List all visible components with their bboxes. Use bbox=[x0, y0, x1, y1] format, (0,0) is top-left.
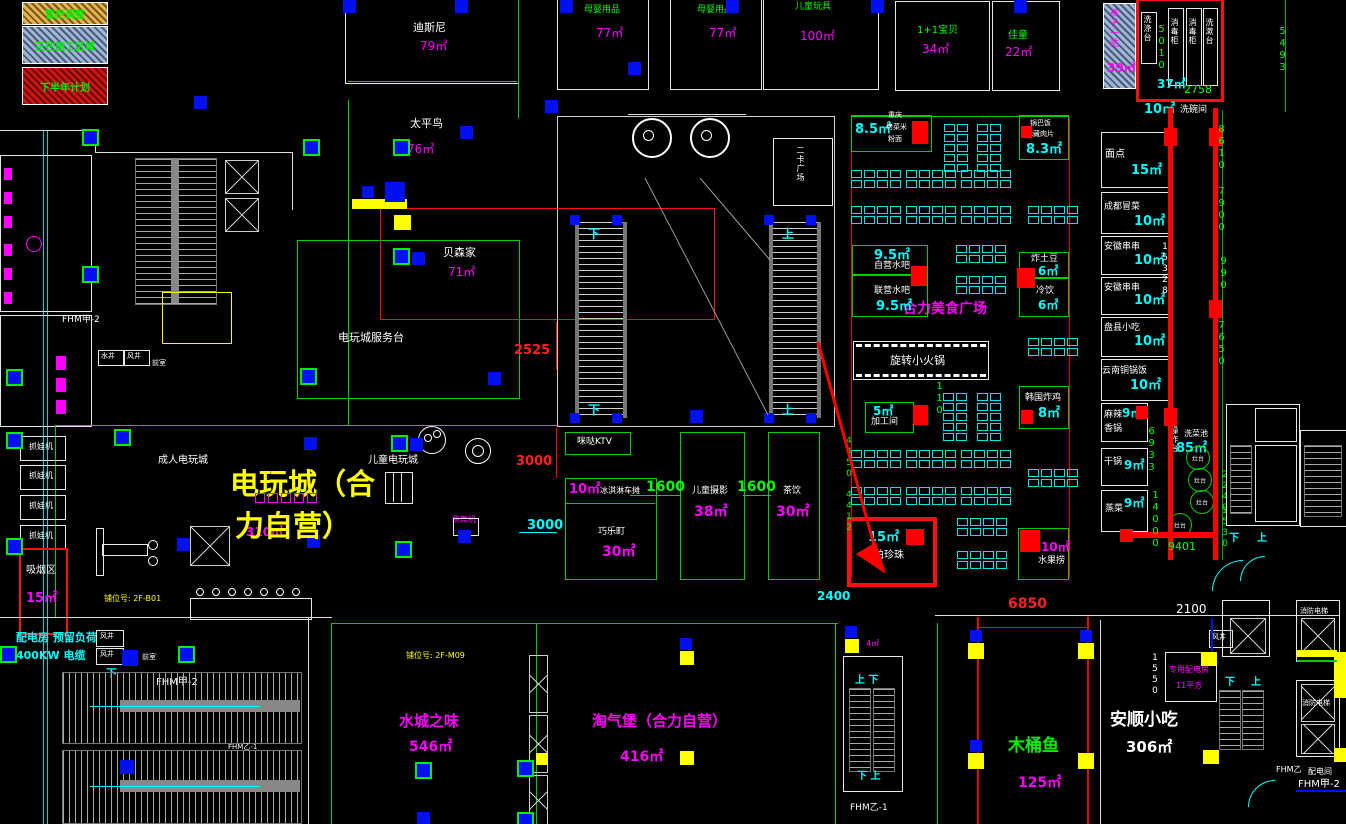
dim-line bbox=[519, 532, 557, 533]
dim-line bbox=[935, 615, 1340, 616]
table-cell bbox=[906, 170, 917, 178]
elevator-shaft bbox=[1301, 724, 1335, 754]
table-cell bbox=[990, 433, 1001, 441]
table-cell bbox=[956, 245, 967, 253]
stall-name: 联营水吧 bbox=[874, 287, 910, 296]
table-cell bbox=[983, 518, 994, 526]
table-cell bbox=[995, 245, 1006, 253]
stall-name: 安徽串串 bbox=[1104, 243, 1140, 252]
table-group bbox=[957, 551, 1007, 569]
column-fire bbox=[680, 751, 694, 765]
dim-label: 2758 bbox=[1184, 84, 1212, 95]
game-machine-detail bbox=[472, 445, 484, 457]
booth-number: 铺位号: 2F-B01 bbox=[104, 595, 161, 603]
table-cell bbox=[961, 450, 972, 458]
elevator-shaft bbox=[225, 160, 259, 194]
dim-label: 14000 bbox=[1150, 490, 1160, 550]
table-cell bbox=[956, 433, 967, 441]
dim-label: 2100 bbox=[1176, 603, 1207, 615]
stool bbox=[148, 540, 158, 550]
column bbox=[410, 438, 423, 451]
stool bbox=[196, 588, 204, 596]
dim-label: 2525 bbox=[514, 344, 550, 357]
stair-direction: 上 bbox=[1251, 678, 1261, 688]
stall-name: 粉面 bbox=[888, 136, 902, 143]
selection-grip bbox=[294, 493, 304, 503]
selection-grip bbox=[281, 493, 291, 503]
column bbox=[304, 437, 317, 450]
table-cell bbox=[851, 170, 862, 178]
stove-label: 灶台 bbox=[1174, 521, 1186, 530]
equipment-room bbox=[1255, 408, 1297, 442]
elevator-label: 消防电梯 bbox=[1300, 608, 1328, 615]
room-area: 37㎡ bbox=[1157, 78, 1186, 90]
wall-line bbox=[628, 114, 746, 115]
stall-area: 38㎡ bbox=[694, 505, 727, 519]
arcade-title: 力自营） bbox=[235, 512, 351, 541]
table-cell bbox=[919, 180, 930, 188]
table-cell bbox=[919, 450, 930, 458]
column bbox=[519, 814, 532, 824]
table-cell bbox=[982, 255, 993, 263]
stall-area: 10㎡ bbox=[1134, 335, 1165, 348]
table-cell bbox=[961, 180, 972, 188]
dim-label: 8610 bbox=[1216, 124, 1226, 172]
table-cell bbox=[1067, 206, 1078, 214]
column-fire bbox=[680, 651, 694, 665]
table-group bbox=[977, 124, 1001, 172]
column bbox=[194, 96, 207, 109]
toilet-fixture bbox=[4, 292, 12, 304]
entrance-ornament-detail bbox=[643, 130, 654, 141]
table-cell bbox=[851, 216, 862, 224]
toilet-fixture bbox=[4, 216, 12, 228]
table-cell bbox=[932, 206, 943, 214]
room-label: 前室 bbox=[152, 360, 166, 367]
store-area: 100㎡ bbox=[800, 30, 835, 42]
table-cell bbox=[1000, 180, 1011, 188]
table-group bbox=[956, 245, 1006, 263]
fire-door-label: FHM乙-1 bbox=[850, 804, 888, 813]
table-cell bbox=[990, 413, 1001, 421]
ktv-label: 咪哒KTV bbox=[577, 438, 612, 447]
table-cell bbox=[1000, 497, 1011, 505]
table-cell bbox=[957, 561, 968, 569]
stall-name: 巧乐町 bbox=[598, 528, 625, 537]
room-name: 洗碗间 bbox=[1180, 106, 1207, 115]
table-group bbox=[977, 393, 1001, 441]
store-area: 22㎡ bbox=[1005, 46, 1032, 58]
column bbox=[305, 141, 318, 154]
stove-label: 灶台 bbox=[1196, 498, 1208, 507]
column bbox=[395, 141, 408, 154]
fire-wall-block bbox=[1120, 529, 1133, 542]
column bbox=[560, 0, 573, 13]
dim-label: 990 bbox=[1218, 256, 1228, 292]
table-cell bbox=[987, 487, 998, 495]
legend-label: 正在施工区域 bbox=[23, 27, 107, 63]
escalator-direction: 下 bbox=[588, 404, 600, 416]
table-cell bbox=[961, 497, 972, 505]
zone-line bbox=[1297, 660, 1337, 662]
table-cell bbox=[864, 170, 875, 178]
dim-label: 1600 bbox=[737, 480, 776, 494]
zone-line bbox=[331, 623, 332, 824]
column bbox=[2, 648, 15, 661]
column bbox=[970, 630, 982, 642]
elevator-shaft bbox=[225, 198, 259, 232]
table-cell bbox=[1028, 479, 1039, 487]
annotation-arrow bbox=[780, 330, 910, 590]
table-cell bbox=[1028, 469, 1039, 477]
game-machine bbox=[385, 472, 413, 504]
column bbox=[570, 413, 580, 423]
store-name: 淘气堡（合力自营） bbox=[592, 714, 727, 729]
fire-door-label: FHM甲-2 bbox=[1298, 780, 1340, 790]
zone-line bbox=[331, 623, 838, 624]
highlight-block bbox=[1021, 410, 1033, 424]
dim-line bbox=[977, 627, 1087, 628]
shaft-outline bbox=[162, 292, 232, 344]
toilet-fixture bbox=[4, 168, 12, 180]
fire-wall-block bbox=[1164, 408, 1177, 426]
table-cell bbox=[990, 144, 1001, 152]
column bbox=[180, 648, 193, 661]
table-cell bbox=[932, 170, 943, 178]
zone-line bbox=[518, 0, 519, 118]
column-fire bbox=[968, 753, 984, 769]
stool bbox=[228, 588, 236, 596]
table-cell bbox=[956, 423, 967, 431]
table-cell bbox=[906, 180, 917, 188]
stall-area: 6㎡ bbox=[1038, 265, 1058, 277]
dim-line bbox=[556, 428, 557, 478]
dim-label: 3000 bbox=[527, 519, 563, 532]
column bbox=[1080, 630, 1092, 642]
table-cell bbox=[945, 487, 956, 495]
table-cell bbox=[919, 487, 930, 495]
table-cell bbox=[987, 450, 998, 458]
wall-line bbox=[0, 130, 95, 131]
table-cell bbox=[957, 124, 968, 132]
stall-name: 云南铜锅饭 bbox=[1102, 367, 1147, 376]
dim-label: 6933 bbox=[1146, 426, 1156, 474]
store-area: 77㎡ bbox=[709, 27, 736, 39]
table-cell bbox=[1054, 348, 1065, 356]
store-area: 71㎡ bbox=[448, 266, 475, 278]
table-cell bbox=[945, 460, 956, 468]
table-cell bbox=[983, 551, 994, 559]
column bbox=[120, 760, 134, 774]
equipment-room bbox=[1255, 445, 1297, 522]
stall-area: 8.3㎡ bbox=[1026, 143, 1062, 156]
column bbox=[871, 0, 884, 13]
table-cell bbox=[974, 497, 985, 505]
claw-label: 抓娃机 bbox=[29, 443, 53, 451]
table-cell bbox=[944, 154, 955, 162]
table-cell bbox=[906, 206, 917, 214]
staircase bbox=[1219, 690, 1241, 750]
stall-name: 成都冒菜 bbox=[1104, 203, 1140, 212]
sink-label: 洗漱台 bbox=[1205, 18, 1213, 45]
table-cell bbox=[974, 206, 985, 214]
stall-name: 蒸菜 bbox=[1105, 505, 1123, 514]
table-cell bbox=[945, 497, 956, 505]
stair-direction: 上 下 bbox=[855, 676, 878, 686]
table-cell bbox=[1054, 206, 1065, 214]
table-cell bbox=[1067, 479, 1078, 487]
dim-label: 2400 bbox=[817, 590, 850, 602]
table-group bbox=[944, 124, 968, 172]
table-cell bbox=[977, 433, 988, 441]
stair-path bbox=[90, 786, 260, 787]
table-cell bbox=[851, 206, 862, 214]
column bbox=[343, 0, 356, 13]
dim-label: 6850 bbox=[1008, 597, 1047, 611]
kitchen-station: 洗菜池 bbox=[1184, 430, 1208, 438]
table-cell bbox=[974, 487, 985, 495]
toilet-fixture bbox=[56, 400, 66, 414]
table-cell bbox=[1067, 348, 1078, 356]
sink-label: 消毒柜 bbox=[1170, 18, 1178, 45]
cable-line bbox=[1211, 618, 1213, 652]
legend-label: 下半年计划 bbox=[23, 68, 107, 104]
stall-name: 儿童摄影 bbox=[692, 487, 728, 496]
table-cell bbox=[957, 134, 968, 142]
store-area: 125㎡ bbox=[1018, 776, 1061, 790]
fire-wall-block bbox=[1334, 748, 1346, 762]
power-room-label: 专用配电房 bbox=[1169, 666, 1209, 674]
zone-line bbox=[55, 425, 557, 426]
table-cell bbox=[944, 124, 955, 132]
table-group bbox=[851, 206, 901, 224]
column bbox=[726, 0, 739, 13]
table-cell bbox=[945, 180, 956, 188]
table-cell bbox=[944, 144, 955, 152]
staircase bbox=[873, 688, 895, 772]
column bbox=[545, 100, 558, 113]
door-swing bbox=[1212, 560, 1243, 591]
table-cell bbox=[1054, 479, 1065, 487]
toilet-fixture bbox=[4, 268, 12, 280]
dim-label: 1600 bbox=[646, 480, 685, 494]
table-cell bbox=[919, 460, 930, 468]
table-cell bbox=[943, 433, 954, 441]
column-fire bbox=[968, 643, 984, 659]
dim-label: 5493 bbox=[1277, 26, 1287, 74]
store-name: 安顺小吃 bbox=[1110, 712, 1178, 729]
table-cell bbox=[1041, 338, 1052, 346]
fire-door-label: FHM乙-1 bbox=[228, 744, 257, 751]
zone-label: 儿童电玩城 bbox=[368, 456, 418, 466]
stall-name: 冷饮 bbox=[1036, 287, 1054, 296]
table-cell bbox=[970, 528, 981, 536]
table-cell bbox=[945, 216, 956, 224]
stall-room bbox=[1101, 132, 1169, 188]
store-area: 546㎡ bbox=[409, 740, 452, 754]
table-cell bbox=[970, 561, 981, 569]
stall-area: 10㎡ bbox=[569, 483, 600, 496]
table-cell bbox=[956, 255, 967, 263]
table-cell bbox=[1041, 216, 1052, 224]
table-cell bbox=[945, 206, 956, 214]
column bbox=[397, 543, 410, 556]
store-name: 木桶鱼 bbox=[1008, 738, 1059, 755]
dim-label: 1550 bbox=[1150, 653, 1159, 697]
table-cell bbox=[956, 403, 967, 411]
highlight-block bbox=[911, 266, 927, 286]
column bbox=[845, 626, 857, 638]
store-name: 佳童 bbox=[1008, 31, 1028, 41]
table-cell bbox=[987, 216, 998, 224]
column bbox=[417, 812, 430, 824]
table-cell bbox=[956, 286, 967, 294]
table-cell bbox=[1000, 206, 1011, 214]
table-cell bbox=[864, 206, 875, 214]
table-cell bbox=[932, 216, 943, 224]
table-cell bbox=[877, 206, 888, 214]
column bbox=[302, 370, 315, 383]
table-cell bbox=[961, 216, 972, 224]
stall-name: 自营水吧 bbox=[874, 262, 910, 271]
table-cell bbox=[943, 403, 954, 411]
table-cell bbox=[1067, 469, 1078, 477]
selection-grip bbox=[255, 493, 265, 503]
stall-name: 重庆 bbox=[888, 112, 902, 119]
fire-wall-block bbox=[1334, 652, 1346, 698]
stool bbox=[292, 588, 300, 596]
legend-under-construction: 正在施工区域 bbox=[22, 26, 108, 64]
zone-line bbox=[937, 623, 938, 824]
legend-pending-adjust: 暂柜调整 bbox=[22, 2, 108, 25]
shaft-label: 风井 bbox=[100, 651, 114, 658]
room-label: 配电间 bbox=[1308, 768, 1332, 776]
table-cell bbox=[995, 276, 1006, 284]
stool bbox=[212, 588, 220, 596]
table-cell bbox=[932, 497, 943, 505]
stove-circle: 灶台 bbox=[1188, 468, 1212, 492]
room-label: 前室 bbox=[142, 654, 156, 661]
table-cell bbox=[974, 180, 985, 188]
cad-floorplan-canvas[interactable]: 暂柜调整 正在施工区域 下半年计划 迪斯尼 79㎡ 母婴用品 77㎡ 母婴用品 … bbox=[0, 0, 1346, 824]
table-group bbox=[943, 393, 967, 441]
table-cell bbox=[995, 255, 1006, 263]
room-area: 15㎡ bbox=[26, 592, 57, 605]
stall-name: 冰淇淋车摊 bbox=[600, 487, 640, 495]
fire-wall-block bbox=[1164, 128, 1177, 146]
stall-area: 9㎡ bbox=[1124, 497, 1144, 509]
sink-label: 消毒柜 bbox=[1188, 18, 1196, 45]
sink-label: 洗涤台 bbox=[1143, 15, 1151, 42]
stair-landing bbox=[171, 158, 179, 303]
wall-line bbox=[0, 617, 332, 618]
table-cell bbox=[977, 423, 988, 431]
table-cell bbox=[977, 134, 988, 142]
highlight-block bbox=[912, 121, 928, 144]
power-room-label: 11平方 bbox=[1176, 682, 1202, 690]
table-cell bbox=[851, 180, 862, 188]
table-cell bbox=[945, 450, 956, 458]
table-group bbox=[906, 170, 956, 188]
table-cell bbox=[977, 144, 988, 152]
table-cell bbox=[983, 528, 994, 536]
column bbox=[84, 131, 97, 144]
store-area: 76㎡ bbox=[407, 143, 434, 155]
table-cell bbox=[932, 180, 943, 188]
table-cell bbox=[987, 206, 998, 214]
door-swing bbox=[1240, 556, 1265, 581]
table-cell bbox=[977, 403, 988, 411]
door-swing bbox=[1248, 780, 1275, 807]
column bbox=[455, 0, 468, 13]
staircase bbox=[1304, 445, 1342, 517]
column bbox=[570, 215, 580, 225]
stair-direction: 下 bbox=[1229, 534, 1239, 544]
column bbox=[458, 530, 471, 543]
stall-name: 干锅 bbox=[1104, 458, 1122, 467]
table-cell bbox=[990, 403, 1001, 411]
column-fire bbox=[536, 753, 548, 765]
fire-wall bbox=[1168, 108, 1173, 560]
shaft-label: 风井 bbox=[1212, 634, 1226, 641]
stair-direction: 下 bbox=[1225, 678, 1235, 688]
selection-grip bbox=[307, 493, 317, 503]
wall-line bbox=[308, 617, 309, 824]
table-cell bbox=[1000, 216, 1011, 224]
fire-door-label: FHM乙 bbox=[1276, 766, 1302, 774]
table-cell bbox=[969, 286, 980, 294]
table-cell bbox=[961, 460, 972, 468]
fire-door-label: FHM甲-2 bbox=[62, 316, 100, 325]
table-cell bbox=[987, 497, 998, 505]
column bbox=[122, 650, 138, 666]
column bbox=[8, 434, 21, 447]
table-cell bbox=[987, 460, 998, 468]
table-cell bbox=[890, 216, 901, 224]
table-cell bbox=[977, 164, 988, 172]
table-group bbox=[961, 170, 1011, 188]
table-cell bbox=[1054, 469, 1065, 477]
table-cell bbox=[1041, 206, 1052, 214]
column bbox=[393, 437, 406, 450]
table-cell bbox=[996, 551, 1007, 559]
stall-area: 10㎡ bbox=[1130, 379, 1161, 392]
elevator-shaft bbox=[1230, 618, 1266, 654]
power-room-label: 配电房 预留负荷 bbox=[16, 632, 97, 643]
table-cell bbox=[1000, 450, 1011, 458]
column-fire bbox=[1078, 643, 1094, 659]
column bbox=[362, 186, 374, 198]
table-cell bbox=[990, 124, 1001, 132]
table-cell bbox=[977, 154, 988, 162]
wall-line bbox=[348, 81, 517, 82]
table-cell bbox=[1067, 338, 1078, 346]
table-cell bbox=[990, 423, 1001, 431]
table-cell bbox=[1054, 338, 1065, 346]
dim-label: 3000 bbox=[516, 455, 552, 468]
game-machine-detail bbox=[401, 472, 402, 502]
wall-line bbox=[1100, 620, 1101, 824]
column bbox=[970, 740, 982, 752]
room-name: 吸烟区 bbox=[26, 566, 56, 576]
toilet-fixture bbox=[26, 236, 42, 252]
table-cell bbox=[1028, 216, 1039, 224]
table-cell bbox=[957, 164, 968, 172]
table-group bbox=[1028, 338, 1078, 356]
table-cell bbox=[932, 460, 943, 468]
toilet-fixture bbox=[4, 192, 12, 204]
store-area: 34㎡ bbox=[922, 43, 949, 55]
